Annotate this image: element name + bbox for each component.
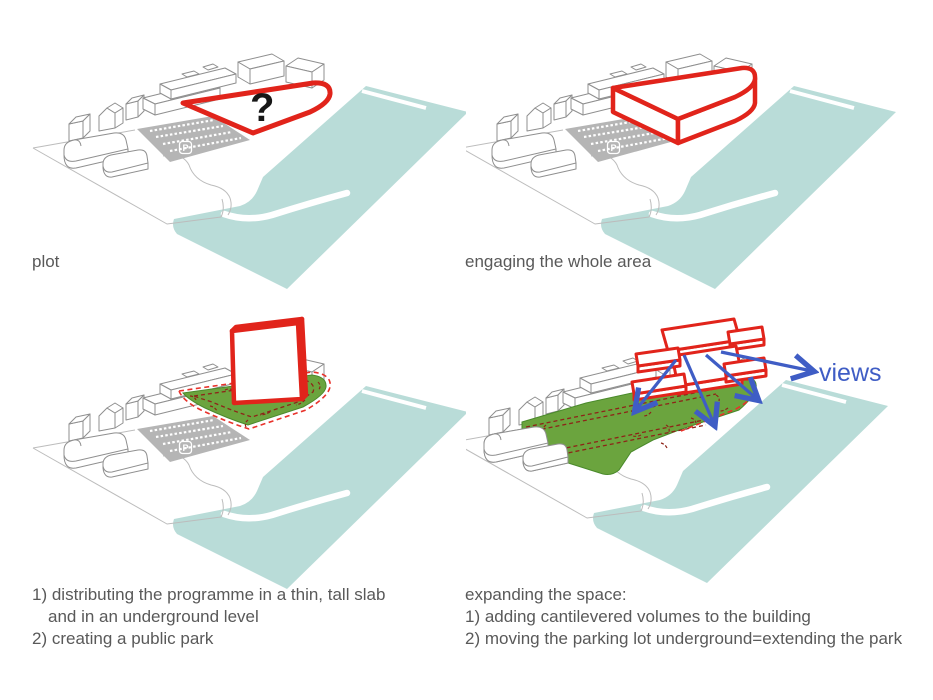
panel-slab-park-diagram bbox=[0, 300, 466, 600]
question-mark: ? bbox=[250, 86, 274, 130]
caption-line: 2) creating a public park bbox=[32, 628, 385, 650]
views-label: views bbox=[819, 359, 882, 387]
caption-slab-park: 1) distributing the programme in a thin,… bbox=[32, 584, 385, 650]
caption-line: 1) distributing the programme in a thin,… bbox=[32, 584, 385, 606]
panel-plot-diagram: ? bbox=[0, 0, 466, 300]
caption-expanding: expanding the space: 1) adding cantileve… bbox=[465, 584, 902, 650]
caption-line: 2) moving the parking lot underground=ex… bbox=[465, 628, 902, 650]
caption-line: and in an underground level bbox=[32, 606, 385, 628]
caption-line: 1) adding cantilevered volumes to the bu… bbox=[465, 606, 902, 628]
caption-plot: plot bbox=[32, 251, 59, 273]
panel-expanding-diagram: views bbox=[466, 300, 933, 600]
diagram-stage: P ? bbox=[0, 0, 933, 700]
tall-slab bbox=[232, 319, 306, 403]
caption-engaging: engaging the whole area bbox=[465, 251, 651, 273]
caption-line: expanding the space: bbox=[465, 584, 902, 606]
